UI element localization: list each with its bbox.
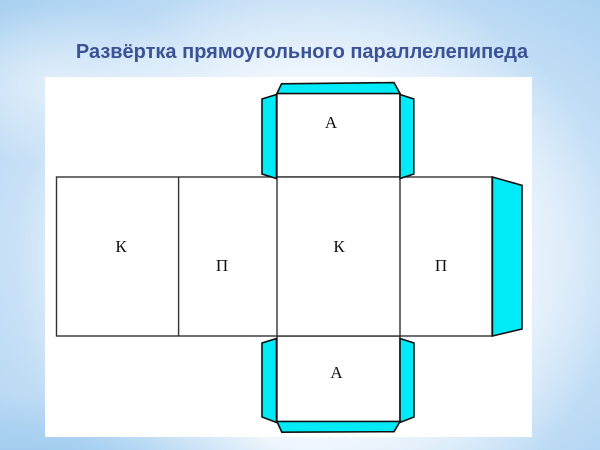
svg-text:К: К <box>333 237 345 256</box>
svg-text:К: К <box>115 237 127 256</box>
svg-text:А: А <box>325 113 338 132</box>
svg-text:А: А <box>330 363 343 382</box>
svg-text:П: П <box>216 256 228 275</box>
svg-text:П: П <box>435 256 447 275</box>
